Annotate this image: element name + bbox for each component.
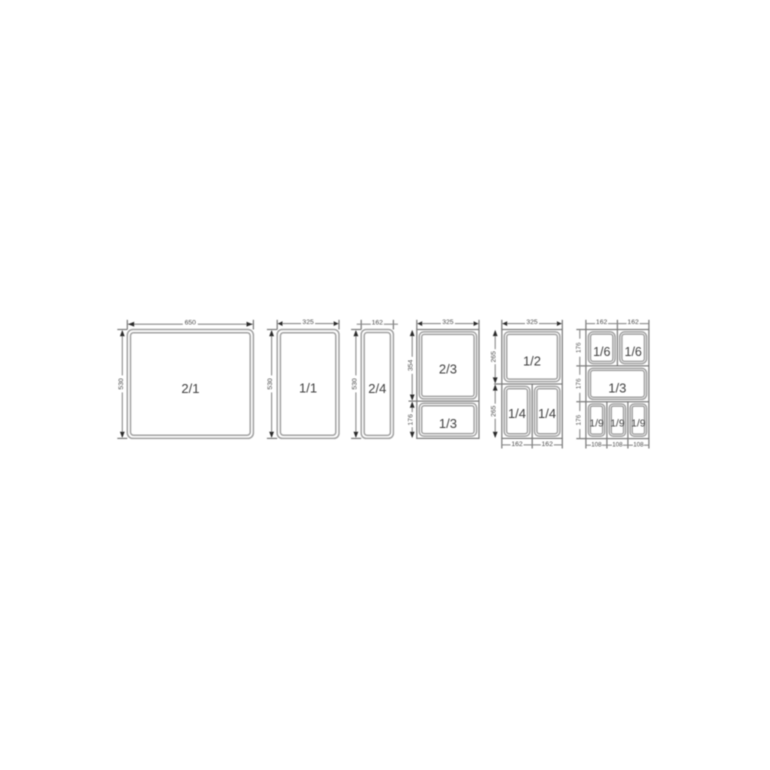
svg-text:108: 108 [612, 441, 623, 448]
svg-text:530: 530 [267, 378, 274, 390]
svg-text:530: 530 [118, 378, 125, 390]
svg-text:108: 108 [591, 441, 602, 448]
svg-text:650: 650 [185, 319, 197, 326]
svg-text:176: 176 [575, 378, 582, 389]
svg-text:530: 530 [351, 378, 358, 390]
svg-text:162: 162 [542, 441, 554, 448]
svg-text:176: 176 [408, 414, 415, 426]
svg-text:2/3: 2/3 [439, 362, 457, 377]
svg-text:325: 325 [526, 319, 538, 326]
svg-text:265: 265 [491, 405, 498, 417]
svg-text:354: 354 [408, 359, 415, 371]
svg-text:1/9: 1/9 [610, 418, 625, 430]
svg-text:108: 108 [633, 441, 644, 448]
svg-text:1/1: 1/1 [299, 381, 317, 396]
svg-text:325: 325 [442, 319, 454, 326]
svg-text:1/4: 1/4 [538, 406, 556, 421]
svg-text:1/4: 1/4 [508, 406, 526, 421]
svg-text:1/6: 1/6 [625, 345, 642, 359]
svg-text:2/4: 2/4 [368, 381, 386, 396]
svg-text:265: 265 [491, 351, 498, 363]
svg-text:1/9: 1/9 [589, 418, 604, 430]
svg-text:1/2: 1/2 [523, 354, 541, 369]
svg-text:1/9: 1/9 [631, 418, 646, 430]
svg-text:162: 162 [627, 319, 639, 326]
svg-text:1/6: 1/6 [593, 345, 610, 359]
svg-text:1/3: 1/3 [439, 416, 457, 431]
svg-text:162: 162 [511, 441, 523, 448]
svg-text:2/1: 2/1 [181, 381, 199, 396]
svg-text:176: 176 [575, 414, 582, 425]
svg-text:1/3: 1/3 [608, 381, 626, 396]
svg-text:325: 325 [302, 319, 314, 326]
svg-text:162: 162 [372, 319, 384, 326]
svg-text:176: 176 [575, 342, 582, 353]
svg-text:162: 162 [596, 319, 608, 326]
